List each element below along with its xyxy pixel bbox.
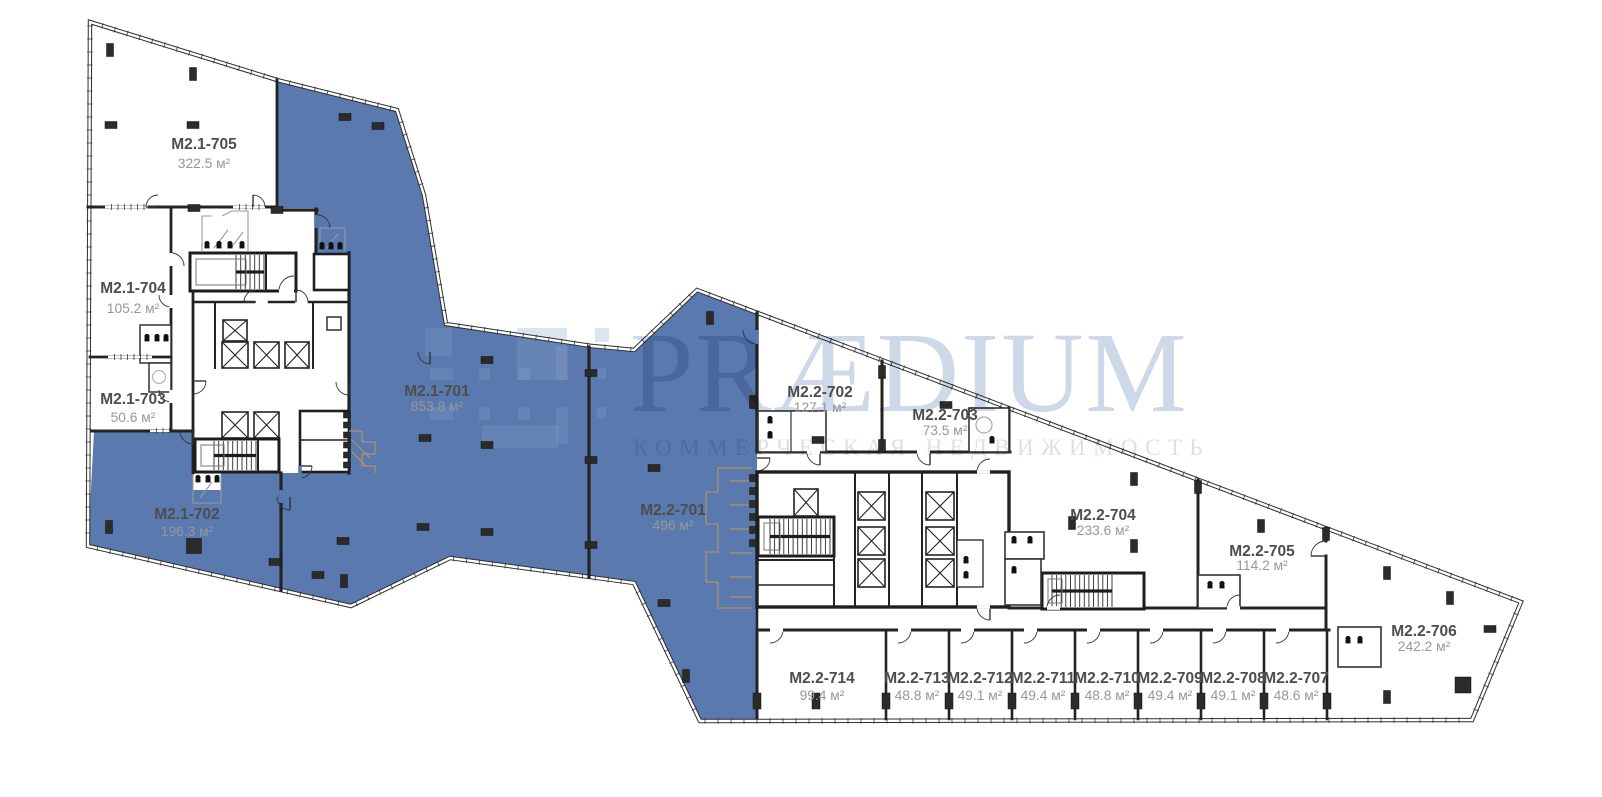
svg-text:M2.1-703: M2.1-703 (100, 391, 166, 408)
svg-text:M2.1-704: M2.1-704 (100, 280, 166, 297)
svg-text:322.5 м²: 322.5 м² (178, 156, 231, 171)
svg-text:50.6 м²: 50.6 м² (111, 410, 156, 425)
svg-text:M2.2-708: M2.2-708 (1200, 670, 1266, 687)
svg-text:M2.1-702: M2.1-702 (154, 506, 219, 523)
svg-text:49.4 м²: 49.4 м² (1021, 688, 1066, 703)
svg-text:M2.2-713: M2.2-713 (884, 670, 950, 687)
svg-text:853.8 м²: 853.8 м² (411, 399, 464, 414)
svg-text:M2.2-701: M2.2-701 (640, 502, 706, 519)
svg-text:48.8 м²: 48.8 м² (895, 688, 940, 703)
svg-text:49.1 м²: 49.1 м² (958, 688, 1003, 703)
svg-text:M2.2-710: M2.2-710 (1074, 670, 1139, 687)
svg-text:КОММЕРЧЕСКАЯ НЕДВИЖИМОСТЬ: КОММЕРЧЕСКАЯ НЕДВИЖИМОСТЬ (633, 435, 1210, 460)
svg-text:M2.2-711: M2.2-711 (1011, 670, 1076, 687)
svg-text:M2.2-704: M2.2-704 (1070, 507, 1136, 524)
svg-text:73.5 м²: 73.5 м² (923, 423, 968, 438)
svg-text:M2.2-707: M2.2-707 (1263, 670, 1328, 687)
svg-text:233.6 м²: 233.6 м² (1077, 523, 1130, 538)
svg-text:PRÆDIUM: PRÆDIUM (630, 309, 1189, 436)
svg-text:M2.2-706: M2.2-706 (1391, 623, 1457, 640)
svg-text:114.2 м²: 114.2 м² (1236, 558, 1288, 573)
svg-text:M2.1-701: M2.1-701 (404, 383, 470, 400)
svg-text:99.4 м²: 99.4 м² (800, 688, 845, 703)
svg-text:M2.2-714: M2.2-714 (789, 670, 855, 687)
svg-text:242.2 м²: 242.2 м² (1398, 639, 1451, 654)
svg-text:127.1 м²: 127.1 м² (794, 400, 847, 415)
svg-text:M2.1-705: M2.1-705 (171, 136, 237, 153)
svg-text:196.3 м²: 196.3 м² (161, 524, 214, 539)
svg-text:49.4 м²: 49.4 м² (1148, 688, 1193, 703)
svg-text:M2.2-709: M2.2-709 (1137, 670, 1203, 687)
svg-text:48.8 м²: 48.8 м² (1085, 688, 1130, 703)
svg-text:M2.2-703: M2.2-703 (912, 407, 978, 424)
svg-text:M2.2-702: M2.2-702 (787, 384, 852, 401)
svg-text:48.6 м²: 48.6 м² (1274, 688, 1319, 703)
svg-text:496 м²: 496 м² (653, 518, 694, 533)
svg-text:105.2 м²: 105.2 м² (107, 301, 160, 316)
svg-text:49.1 м²: 49.1 м² (1211, 688, 1256, 703)
svg-text:M2.2-712: M2.2-712 (947, 670, 1012, 687)
